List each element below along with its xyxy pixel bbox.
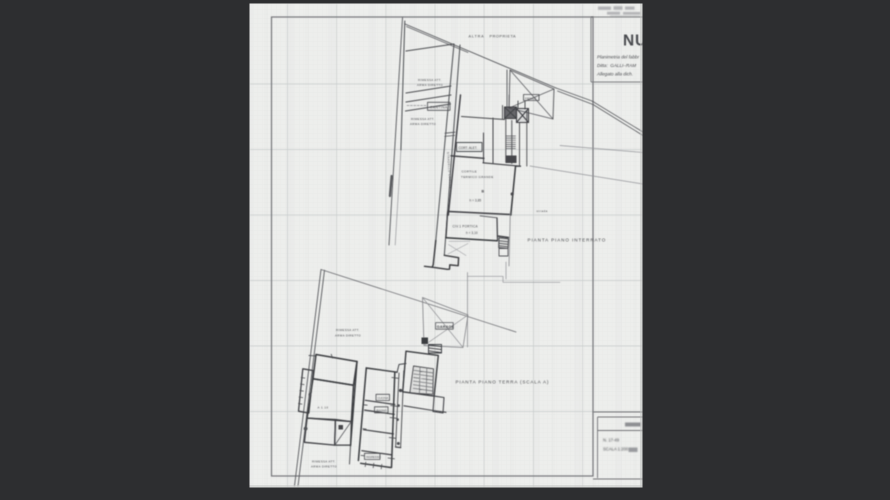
svg-text:CANTINA: CANTINA <box>430 106 448 110</box>
svg-text:h = 3,85: h = 3,85 <box>470 199 482 203</box>
svg-text:RIMESSA ATT.: RIMESSA ATT. <box>312 460 336 464</box>
svg-text:BAGNO: BAGNO <box>377 409 388 413</box>
svg-text:ARMA DIRETTO: ARMA DIRETTO <box>417 83 443 87</box>
svg-text:Ditta: GALLI–RAM: Ditta: GALLI–RAM <box>597 63 636 68</box>
svg-text:ARMA DIRETTO: ARMA DIRETTO <box>311 465 337 469</box>
svg-text:ARMA DIRETTO: ARMA DIRETTO <box>410 122 436 126</box>
svg-text:CORTILE: CORTILE <box>462 170 477 174</box>
svg-text:N. 17-49: N. 17-49 <box>603 438 620 443</box>
svg-text:SCALA 1:200: SCALA 1:200 <box>603 447 629 452</box>
svg-text:PIANTA PIANO INTERRATO: PIANTA PIANO INTERRATO <box>528 238 607 243</box>
svg-text:h = 3,10: h = 3,10 <box>466 231 478 235</box>
svg-text:RIMESSA ATT.: RIMESSA ATT. <box>411 117 435 121</box>
svg-text:ALTRA: ALTRA <box>469 35 485 39</box>
svg-text:CORT. ALET.: CORT. ALET. <box>459 146 478 150</box>
svg-text:B: B <box>482 190 485 194</box>
svg-text:ARMA DIRETTO: ARMA DIRETTO <box>335 334 361 338</box>
svg-text:strada: strada <box>537 209 548 213</box>
svg-text:RIMESSA ATT.: RIMESSA ATT. <box>336 328 360 332</box>
svg-text:GARAGE: GARAGE <box>437 325 455 329</box>
svg-text:TERMICO GRANDE: TERMICO GRANDE <box>461 175 494 179</box>
svg-text:FIENILE: FIENILE <box>525 96 536 100</box>
svg-text:Planimetria del fabbr: Planimetria del fabbr <box>597 55 640 60</box>
svg-text:A 1.10: A 1.10 <box>318 406 329 410</box>
svg-text:CIV.1 PORTICA: CIV.1 PORTICA <box>453 225 479 229</box>
svg-text:Allegato alla dich.: Allegato alla dich. <box>596 72 633 77</box>
svg-text:PIANTA PIANO TERRA (SCALA A): PIANTA PIANO TERRA (SCALA A) <box>456 380 550 385</box>
svg-text:CUCINA: CUCINA <box>378 396 389 400</box>
svg-text:INGRESSO: INGRESSO <box>366 455 382 459</box>
svg-text:PROPRIETA: PROPRIETA <box>490 35 517 39</box>
svg-text:RIMESSA ATT.: RIMESSA ATT. <box>418 78 442 82</box>
